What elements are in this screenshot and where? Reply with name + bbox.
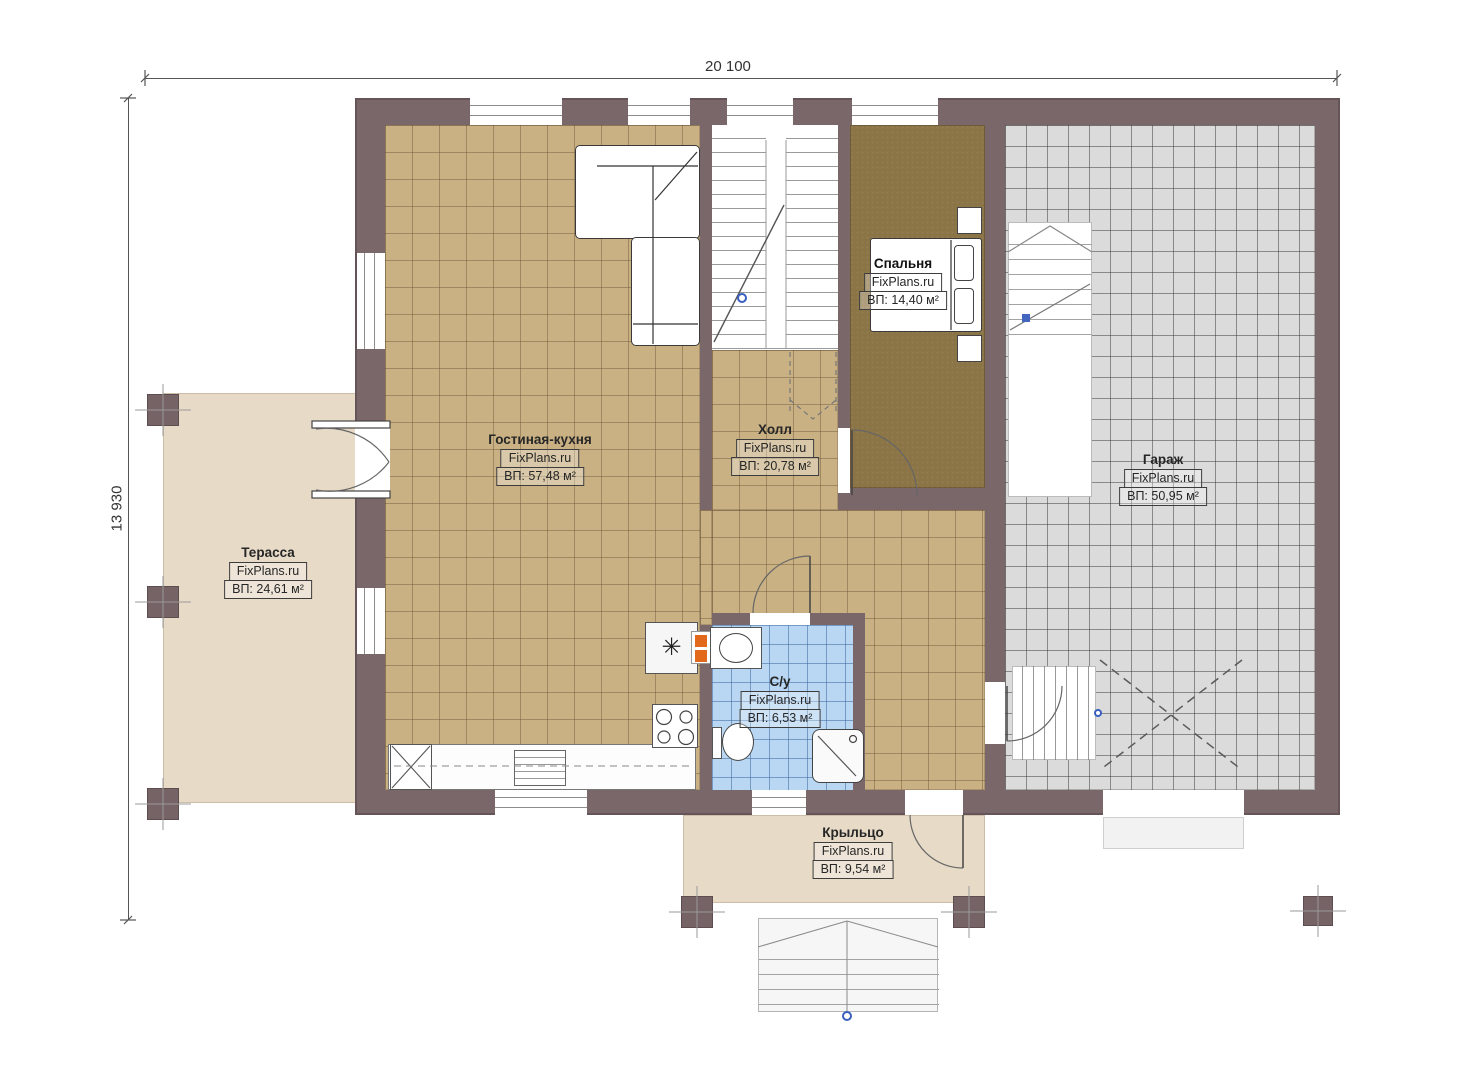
kitchen-drawer-unit <box>514 750 566 786</box>
passage-living-hall <box>700 510 712 625</box>
bathroom-sink <box>710 627 762 669</box>
cooktop <box>652 704 698 748</box>
room-name-hall: Холл <box>731 422 819 437</box>
dimension-line-top <box>145 78 1337 79</box>
window-bottom-kitchen <box>495 790 587 815</box>
window-left-living-1 <box>357 253 385 349</box>
area-terrace: ВП: 24,61 м² <box>224 580 312 599</box>
bed-pillow-bottom <box>954 288 974 324</box>
porch-steps <box>758 918 938 1012</box>
terrace-pillar-bottom <box>147 788 179 820</box>
brand-bedroom: FixPlans.ru <box>864 273 943 292</box>
label-living-kitchen: Гостиная-кухня FixPlans.ru ВП: 57,48 м² <box>488 432 591 486</box>
label-bathroom: С/у FixPlans.ru ВП: 6,53 м² <box>740 674 821 728</box>
brand-terrace: FixPlans.ru <box>229 562 308 581</box>
boiler <box>691 631 711 664</box>
window-top-stairwell <box>727 98 793 125</box>
area-living: ВП: 57,48 м² <box>496 467 584 486</box>
garage-entry-steps <box>1012 666 1096 760</box>
area-bedroom: ВП: 14,40 м² <box>859 291 947 310</box>
garage-side-door-opening <box>985 682 1005 744</box>
dimension-line-left <box>128 98 129 920</box>
brand-hall: FixPlans.ru <box>736 439 815 458</box>
garage-gate-opening <box>1103 790 1244 817</box>
dimension-width-label: 20 100 <box>705 58 751 75</box>
window-top-bedroom <box>852 98 938 125</box>
label-garage: Гараж FixPlans.ru ВП: 50,95 м² <box>1119 452 1207 506</box>
area-hall: ВП: 20,78 м² <box>731 457 819 476</box>
brand-living: FixPlans.ru <box>501 449 580 468</box>
nightstand-top <box>957 207 982 234</box>
brand-bathroom: FixPlans.ru <box>741 691 820 710</box>
bathroom-sink-basin <box>719 633 753 663</box>
toilet-bowl <box>722 723 754 761</box>
label-terrace: Терасса FixPlans.ru ВП: 24,61 м² <box>224 545 312 599</box>
staircase-stringer <box>766 138 786 348</box>
area-bathroom: ВП: 6,53 м² <box>740 709 821 728</box>
dimension-height-label: 13 930 <box>109 464 126 554</box>
room-name-bedroom: Спальня <box>859 256 947 271</box>
appliance-star-icon: ✳ <box>661 636 681 660</box>
floor-plan-canvas: 20 100 13 930 <box>0 0 1474 1080</box>
area-garage: ВП: 50,95 м² <box>1119 487 1207 506</box>
room-name-porch: Крыльцо <box>813 825 894 840</box>
nightstand-bottom <box>957 335 982 362</box>
porch-door-opening <box>905 790 963 815</box>
label-bedroom: Спальня FixPlans.ru ВП: 14,40 м² <box>859 256 947 310</box>
porch-pillar-right <box>953 896 985 928</box>
terrace-door-opening <box>355 424 390 498</box>
toilet-tank <box>712 727 722 759</box>
garage-basement-stairs <box>1008 222 1092 497</box>
brand-garage: FixPlans.ru <box>1124 469 1203 488</box>
boiler-cell-bottom <box>695 650 707 662</box>
porch-step-treads <box>759 945 939 1013</box>
terrace-pillar-top <box>147 394 179 426</box>
terrace-pillar-middle <box>147 586 179 618</box>
sofa-horizontal-section <box>575 145 700 239</box>
room-name-terrace: Терасса <box>224 545 312 560</box>
window-top-living-2 <box>628 98 690 125</box>
kitchen-sink-unit <box>390 744 432 790</box>
label-hall: Холл FixPlans.ru ВП: 20,78 м² <box>731 422 819 476</box>
brand-porch: FixPlans.ru <box>814 842 893 861</box>
room-name-garage: Гараж <box>1119 452 1207 467</box>
window-top-living-1 <box>470 98 562 125</box>
window-left-living-2 <box>357 588 385 654</box>
driveway-pillar <box>1303 896 1333 926</box>
garage-basement-stair-treads <box>1008 230 1092 342</box>
room-name-bathroom: С/у <box>740 674 821 689</box>
window-bottom-bathroom <box>752 790 806 815</box>
bedroom-door-opening <box>838 428 850 493</box>
bathroom-door-opening <box>750 613 810 625</box>
garage-gate-apron <box>1103 817 1244 849</box>
label-porch: Крыльцо FixPlans.ru ВП: 9,54 м² <box>813 825 894 879</box>
boiler-cell-top <box>695 635 707 647</box>
porch-pillar-left <box>681 896 713 928</box>
shower-tray <box>812 729 864 783</box>
area-porch: ВП: 9,54 м² <box>813 860 894 879</box>
room-name-living: Гостиная-кухня <box>488 432 591 447</box>
sofa-vertical-section <box>631 237 700 346</box>
bed-pillow-top <box>954 245 974 281</box>
